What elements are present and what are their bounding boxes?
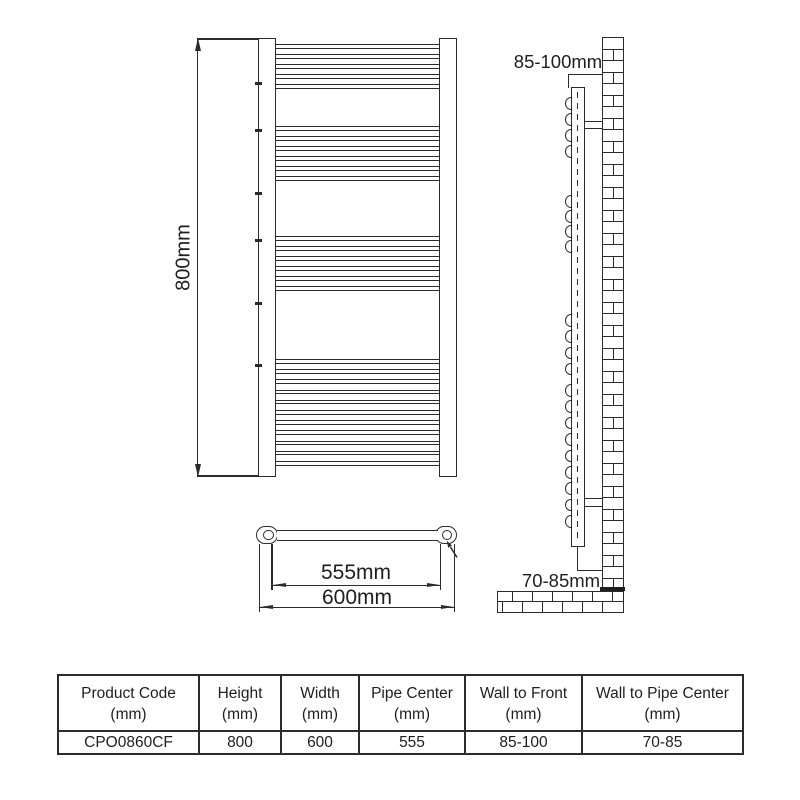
towel-bar [274, 84, 440, 89]
brick-row [603, 257, 623, 269]
brick-row [603, 521, 623, 533]
cell-wall-to-front: 85-100 [465, 731, 582, 754]
floor-brick [498, 592, 513, 601]
brick-row [603, 498, 623, 510]
brick-row [603, 303, 623, 315]
towel-bar [274, 74, 440, 79]
floor-brick [523, 602, 543, 612]
col-header-wall-to-pipe-center: Wall to Pipe Center(mm) [582, 675, 743, 731]
width-dimension-label: 600mm [297, 586, 417, 610]
towel-bar [274, 176, 440, 181]
wall-bracket-bottom [584, 498, 603, 507]
dimension-arrow-left-icon [273, 583, 286, 587]
cell-pipe-center: 555 [359, 731, 465, 754]
towel-bar [274, 286, 440, 291]
height-dimension-label: 800mm [173, 216, 196, 300]
towel-bar [274, 276, 440, 281]
floor-brick [583, 602, 603, 612]
spec-table-data-row: CPO0860CF 800 600 555 85-100 70-85 [58, 731, 743, 754]
brick-joint [613, 533, 614, 544]
towel-bar [274, 410, 440, 415]
towel-bar [274, 451, 440, 456]
brick-joint [613, 280, 614, 291]
floor-brick-row [498, 602, 623, 612]
towel-bar [274, 246, 440, 251]
brick-joint [613, 50, 614, 61]
brick-joint [613, 119, 614, 130]
brick-row [603, 176, 623, 188]
brick-row [603, 395, 623, 407]
brick-row [603, 280, 623, 292]
towel-bar [274, 461, 440, 466]
towel-bar [274, 136, 440, 141]
brick-row [603, 533, 623, 545]
brick-row [603, 349, 623, 361]
brick-row [603, 337, 623, 349]
floor-brick [593, 592, 613, 601]
width-extension-right [454, 544, 455, 612]
brick-joint [613, 211, 614, 222]
left-pipe-center [263, 530, 274, 541]
brick-joint [613, 234, 614, 245]
brick-row [603, 464, 623, 476]
towel-bar [274, 54, 440, 59]
towel-bar [274, 146, 440, 151]
brick-floor [497, 591, 624, 613]
towel-bar [274, 266, 440, 271]
brick-row [603, 372, 623, 384]
brick-joint [613, 372, 614, 383]
brick-row [603, 291, 623, 303]
wall-to-pipe-center-label: 70-85mm [512, 570, 610, 592]
towel-bar [274, 390, 440, 395]
towel-bar [274, 126, 440, 131]
dimension-arrow-right-icon [427, 583, 440, 587]
width-extension-left [259, 544, 260, 612]
towel-bar [274, 44, 440, 49]
brick-row [603, 107, 623, 119]
brick-joint [613, 188, 614, 199]
towel-bar [274, 236, 440, 241]
wall-bracket-top [584, 121, 603, 130]
brick-row [603, 234, 623, 246]
towel-bar [274, 359, 440, 364]
towel-bar [274, 420, 440, 425]
rail-tick [255, 302, 262, 305]
towel-bar [274, 400, 440, 405]
brick-joint [613, 556, 614, 567]
brick-row [603, 418, 623, 430]
brick-row [603, 130, 623, 142]
brick-row [603, 510, 623, 522]
floor-brick [553, 592, 573, 601]
col-header-width: Width(mm) [281, 675, 359, 731]
brick-row [603, 153, 623, 165]
col-header-wall-to-front: Wall to Front(mm) [465, 675, 582, 731]
towel-bar [274, 256, 440, 261]
brick-row [603, 222, 623, 234]
floor-brick [563, 602, 583, 612]
left-rail [258, 38, 277, 477]
brick-row [603, 441, 623, 453]
floor-brick [613, 592, 623, 601]
cell-height: 800 [199, 731, 281, 754]
top-view-bar [277, 530, 438, 541]
brick-row [603, 61, 623, 73]
brick-row [603, 73, 623, 85]
rail-tick [255, 192, 262, 195]
extension-line-bottom [197, 475, 259, 477]
floor-brick [573, 592, 593, 601]
brick-row [603, 84, 623, 96]
brick-row [603, 50, 623, 62]
pipe-center-dimension-label: 555mm [296, 561, 416, 585]
rail-tick [255, 239, 262, 242]
floor-brick-row [498, 592, 623, 602]
dimension-arrow-right-icon [441, 605, 454, 609]
brick-joint [613, 303, 614, 314]
brick-row [603, 245, 623, 257]
towel-bar [274, 64, 440, 69]
towel-bar [274, 379, 440, 384]
brick-joint [613, 142, 614, 153]
brick-joint [613, 349, 614, 360]
brick-row [603, 383, 623, 395]
extension-line-top [197, 38, 259, 40]
brick-joint [613, 395, 614, 406]
brick-wall [602, 37, 624, 588]
cell-product-code: CPO0860CF [58, 731, 199, 754]
pipe-pointer-arrow-icon [440, 537, 464, 563]
cell-wall-to-pipe-center: 70-85 [582, 731, 743, 754]
brick-row [603, 188, 623, 200]
brick-row [603, 360, 623, 372]
towel-bar [274, 166, 440, 171]
brick-joint [613, 464, 614, 475]
dimension-arrow-left-icon [260, 605, 273, 609]
towel-bar [274, 441, 440, 446]
height-dimension-line [197, 40, 199, 476]
wall-to-front-leader-horizontal [568, 74, 603, 75]
wall-to-front-leader-vertical [568, 74, 569, 88]
towel-bar [274, 369, 440, 374]
floor-brick [533, 592, 553, 601]
rail-centerline-dashed [577, 92, 579, 542]
right-rail [439, 38, 458, 477]
brick-row [603, 487, 623, 499]
spec-table-header-row: Product Code(mm) Height(mm) Width(mm) Pi… [58, 675, 743, 731]
wall-to-front-label: 85-100mm [506, 51, 610, 73]
brick-row [603, 142, 623, 154]
spec-table: Product Code(mm) Height(mm) Width(mm) Pi… [57, 674, 744, 755]
brick-joint [613, 418, 614, 429]
towel-bar [274, 430, 440, 435]
brick-row [603, 199, 623, 211]
brick-row [603, 429, 623, 441]
brick-joint [613, 96, 614, 107]
brick-joint [613, 487, 614, 498]
cell-width: 600 [281, 731, 359, 754]
brick-row [603, 211, 623, 223]
rail-tick [255, 82, 262, 85]
brick-joint [613, 165, 614, 176]
floor-brick [603, 602, 623, 612]
brick-row [603, 96, 623, 108]
brick-joint [613, 73, 614, 84]
brick-row [603, 475, 623, 487]
brick-row [603, 314, 623, 326]
col-header-product-code: Product Code(mm) [58, 675, 199, 731]
col-header-pipe-center: Pipe Center(mm) [359, 675, 465, 731]
brick-joint [613, 326, 614, 337]
rail-tick [255, 364, 262, 367]
floor-brick [503, 602, 523, 612]
brick-row [603, 452, 623, 464]
brick-row [603, 38, 623, 50]
wall-to-pipe-leader-vertical [577, 547, 578, 570]
pipe-center-extension-right [440, 544, 441, 590]
floor-brick [543, 602, 563, 612]
col-header-height: Height(mm) [199, 675, 281, 731]
rail-tick [255, 129, 262, 132]
brick-row [603, 406, 623, 418]
brick-joint [613, 441, 614, 452]
brick-joint [613, 510, 614, 521]
towel-bar [274, 156, 440, 161]
brick-joint [613, 257, 614, 268]
brick-row [603, 326, 623, 338]
brick-row [603, 268, 623, 280]
brick-row [603, 544, 623, 556]
dimension-arrow-up-icon [195, 38, 201, 51]
towel-radiator-technical-drawing: 800mm 85-100mm 70-85mm [0, 0, 800, 800]
brick-row [603, 165, 623, 177]
floor-brick [513, 592, 533, 601]
brick-row [603, 119, 623, 131]
brick-row [603, 556, 623, 568]
